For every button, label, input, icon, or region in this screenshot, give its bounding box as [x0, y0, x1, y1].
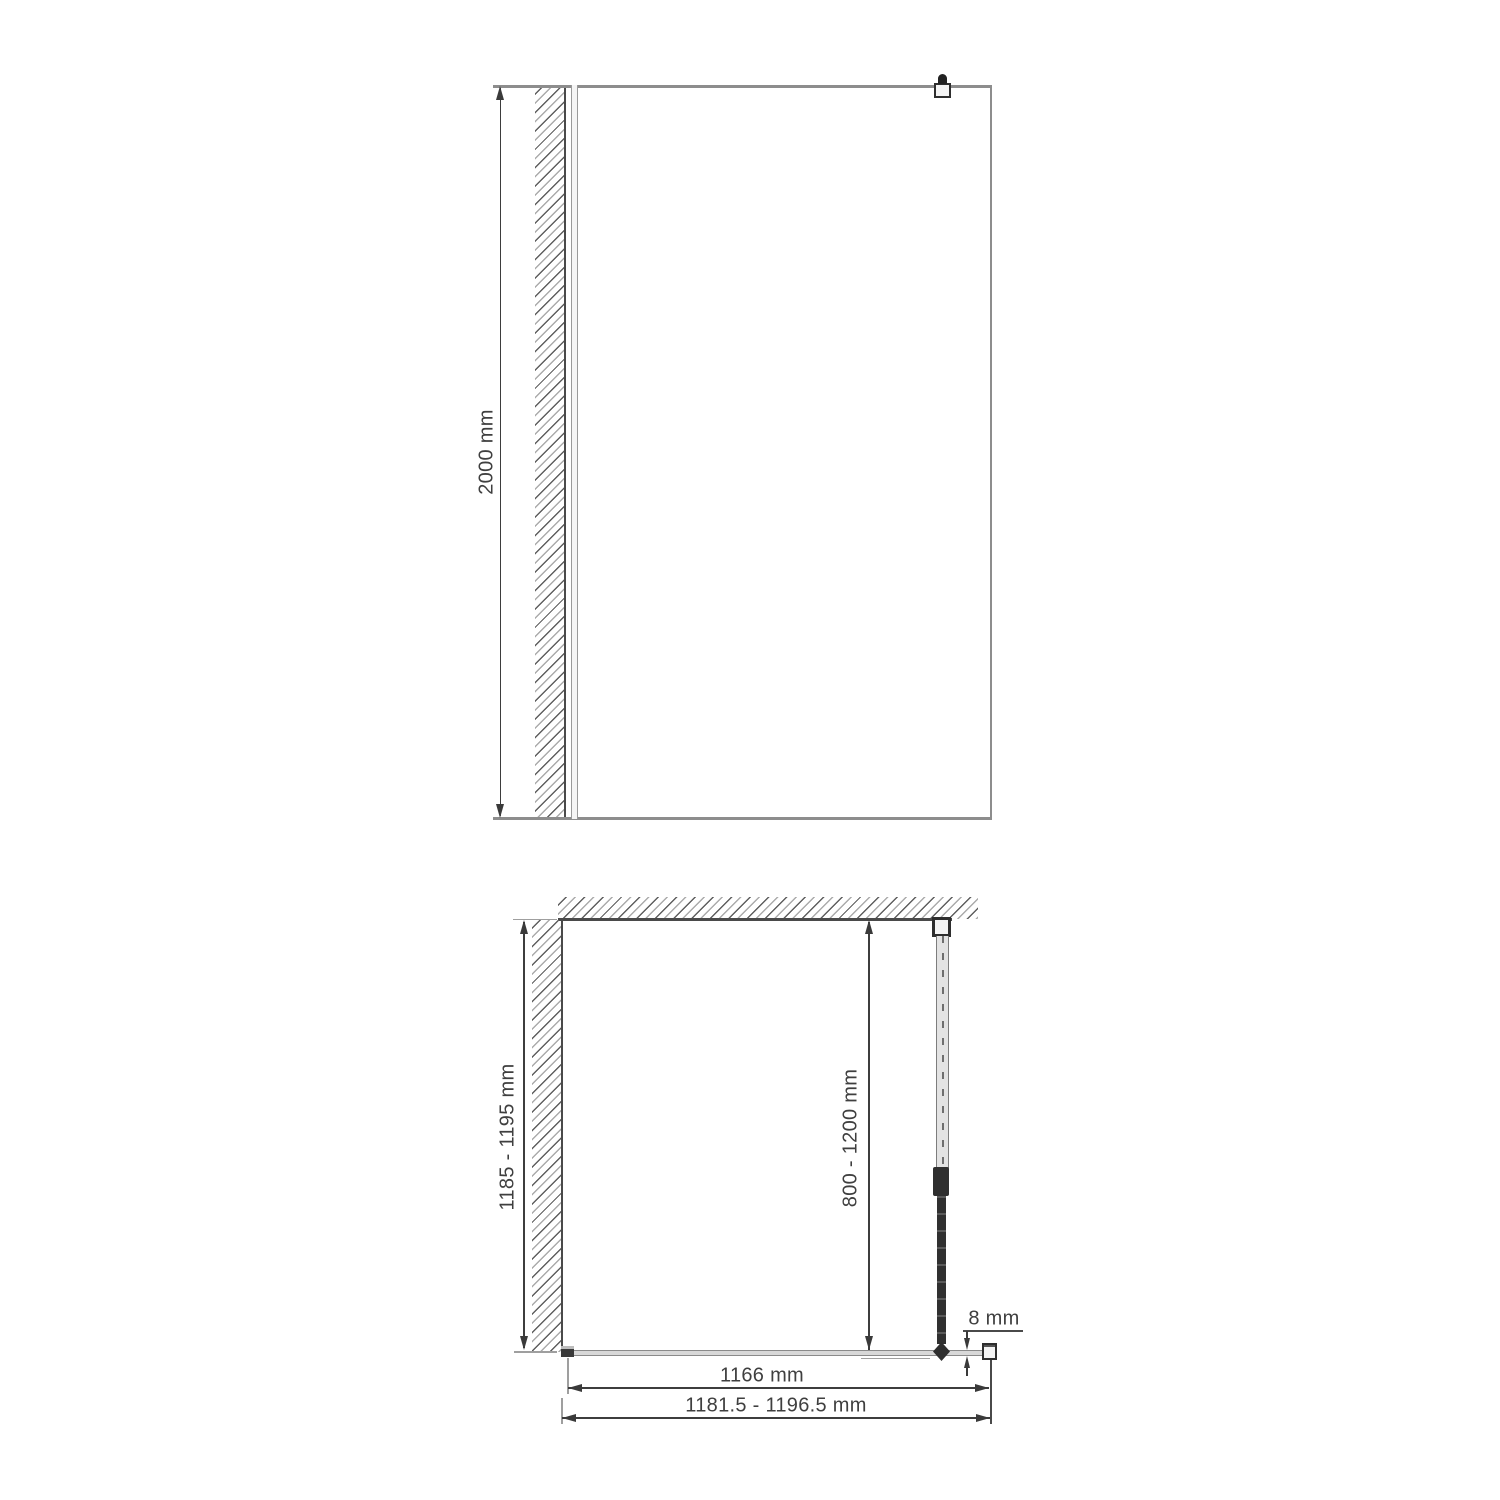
glass-width-arrow-right	[975, 1384, 989, 1392]
bar-dimension-bottom-extension	[861, 1358, 930, 1360]
support-bar-wall-bracket	[932, 917, 951, 937]
support-bar-clamp	[933, 1167, 949, 1196]
technical-drawing-canvas: 2000 mm 1185 - 1195 mm	[0, 0, 1500, 1500]
depth-dimension-arrow-bottom	[520, 1336, 528, 1350]
wall-profile-plan	[561, 1346, 574, 1357]
right-shared-extension	[990, 1360, 992, 1424]
glass-end-bracket-plan	[982, 1343, 997, 1360]
wall-profile-front	[571, 85, 578, 819]
support-bar-outer-tube	[936, 936, 949, 1168]
glass-width-arrow-left	[568, 1384, 582, 1392]
support-bar-inner-rod	[937, 1196, 946, 1344]
height-dimension-label: 2000 mm	[476, 409, 499, 494]
plan-view: 1185 - 1195 mm 800 - 1200 mm 8 mm 1166 m…	[0, 870, 1500, 1500]
bar-dimension-label: 800 - 1200 mm	[840, 1069, 863, 1207]
glass-thickness-arrow-up	[964, 1356, 970, 1368]
glass-thickness-line-below	[966, 1368, 968, 1376]
depth-dimension-line	[523, 922, 525, 1348]
height-dimension-arrow-top	[496, 86, 504, 100]
bar-dimension-arrow-top	[865, 920, 873, 934]
left-wall-bottom-extension-line	[514, 1351, 557, 1353]
support-bar-clamp-front	[934, 83, 951, 98]
wall-hatch-front	[535, 86, 565, 818]
height-dimension-arrow-bottom	[496, 804, 504, 818]
glass-thickness-leader	[963, 1330, 1023, 1332]
bar-dimension-arrow-bottom	[865, 1336, 873, 1350]
glass-right-edge	[990, 85, 992, 819]
overall-width-arrow-left	[562, 1414, 576, 1422]
glass-panel-plan	[562, 1350, 985, 1356]
glass-bottom-edge	[493, 817, 992, 820]
support-bar-knob-front	[938, 74, 947, 84]
wall-hatch-plan-left	[532, 920, 562, 1352]
glass-thickness-label: 8 mm	[968, 1308, 1019, 1331]
support-bar-dashes	[942, 936, 944, 1168]
wall-face-line-plan-top	[558, 918, 952, 921]
depth-dimension-label: 1185 - 1195 mm	[497, 1064, 520, 1211]
overall-width-label: 1181.5 - 1196.5 mm	[685, 1395, 866, 1418]
overall-width-arrow-right	[976, 1414, 990, 1422]
height-dimension-line	[500, 88, 502, 816]
wall-hatch-plan-top	[558, 897, 978, 919]
wall-face-line-plan-left	[561, 918, 563, 1352]
support-bar-glass-connector	[933, 1342, 950, 1361]
wall-face-line-front	[564, 85, 566, 819]
front-elevation-view: 2000 mm	[0, 0, 1500, 870]
glass-width-label: 1166 mm	[720, 1365, 804, 1388]
glass-thickness-arrow-down	[964, 1338, 970, 1350]
bar-dimension-line	[868, 922, 870, 1350]
glass-top-edge	[493, 85, 992, 88]
depth-dimension-arrow-top	[520, 920, 528, 934]
